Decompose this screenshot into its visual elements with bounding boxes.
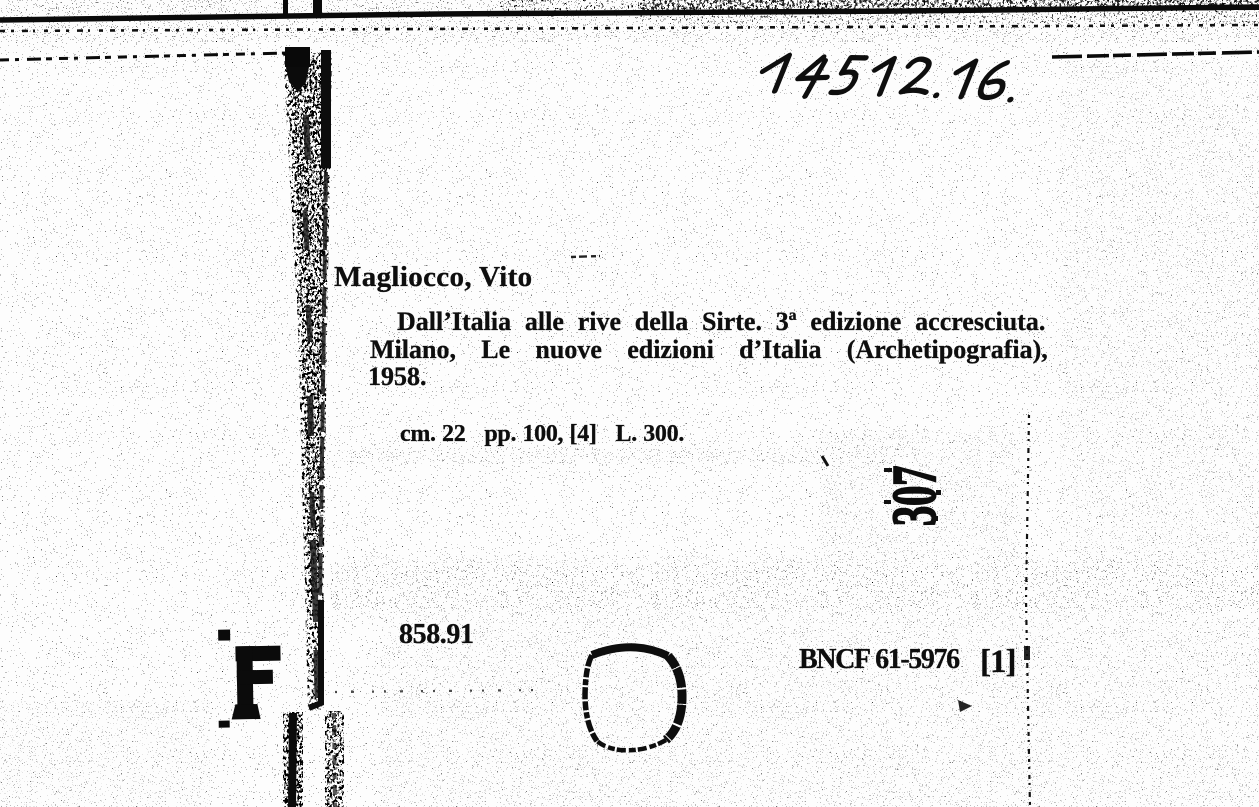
svg-text:307: 307 (880, 466, 949, 526)
